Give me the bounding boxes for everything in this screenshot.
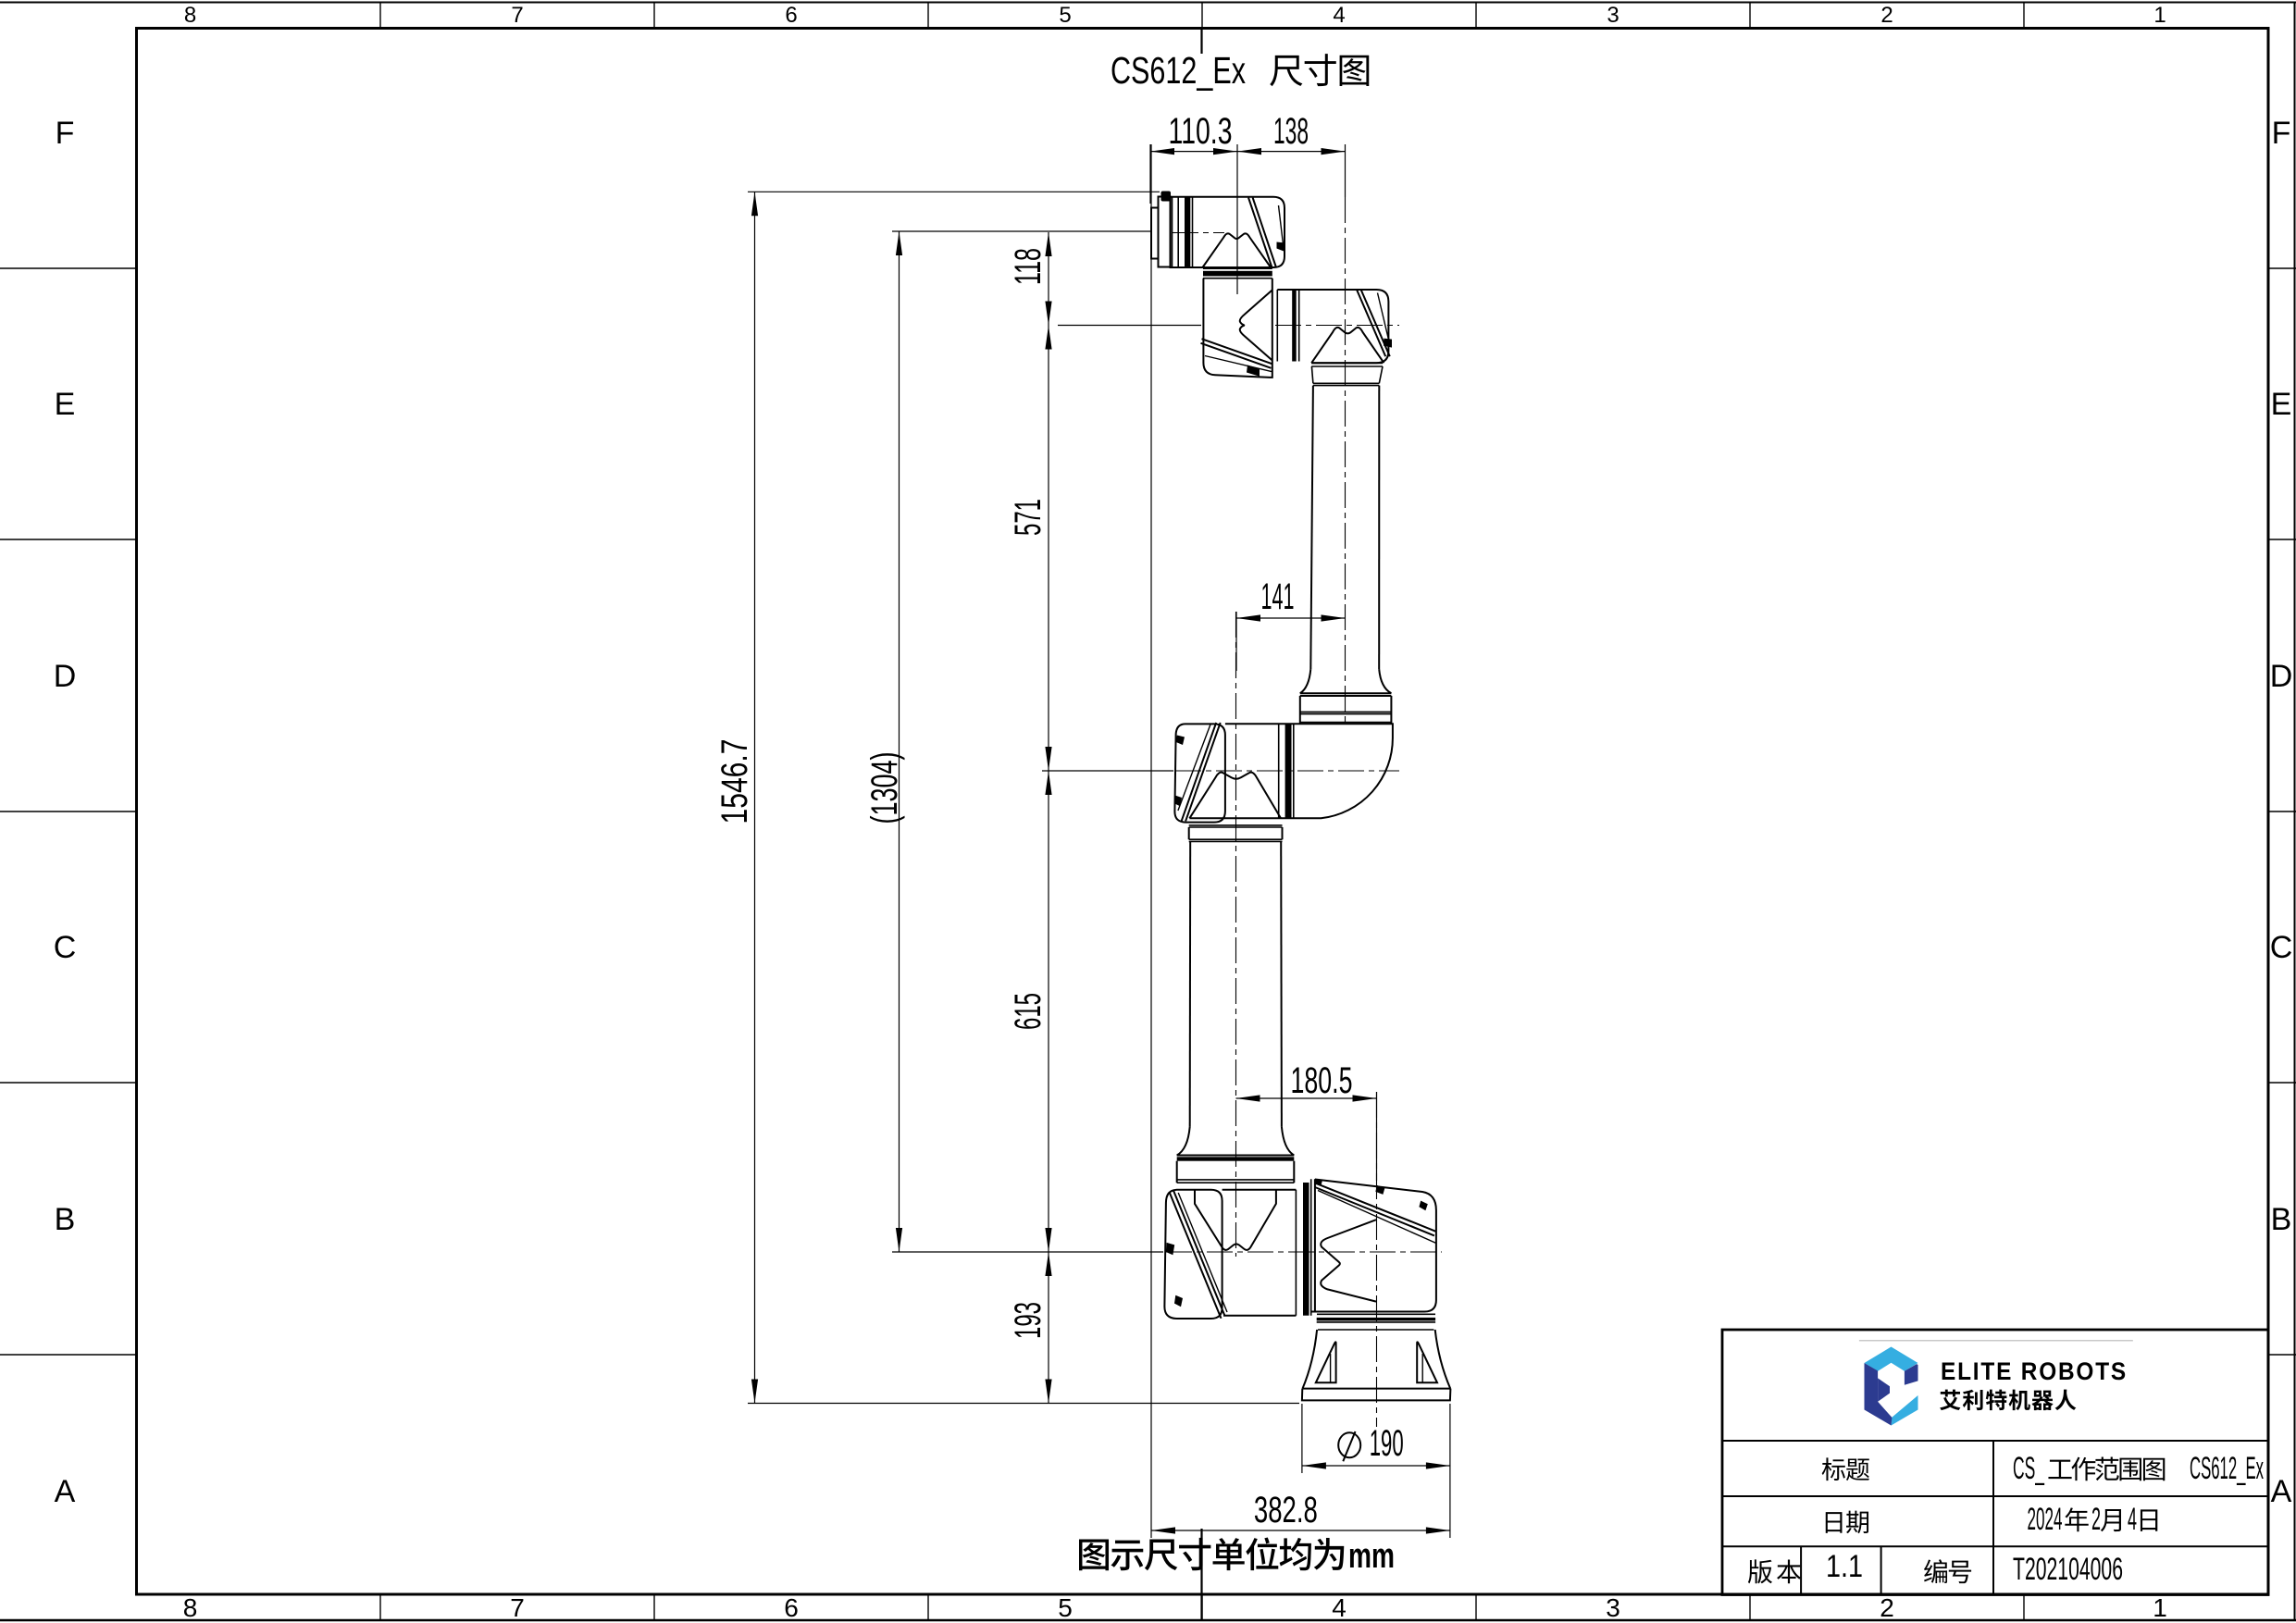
svg-text:6: 6 bbox=[785, 3, 797, 28]
svg-text:1: 1 bbox=[2153, 1593, 2167, 1622]
svg-text:E: E bbox=[55, 387, 76, 422]
svg-text:2: 2 bbox=[2091, 1502, 2101, 1537]
svg-text:A: A bbox=[55, 1474, 76, 1509]
svg-text:D: D bbox=[54, 659, 77, 694]
svg-text:180.5: 180.5 bbox=[1291, 1060, 1353, 1101]
svg-text:141: 141 bbox=[1261, 576, 1295, 617]
svg-text:T202104006: T202104006 bbox=[2013, 1552, 2123, 1587]
svg-text:193: 193 bbox=[1008, 1302, 1049, 1339]
svg-text:C: C bbox=[2270, 930, 2293, 965]
svg-text:1.1: 1.1 bbox=[1826, 1549, 1863, 1584]
svg-text:E: E bbox=[2271, 387, 2292, 422]
svg-text:8: 8 bbox=[184, 3, 196, 28]
svg-text:7: 7 bbox=[511, 3, 523, 28]
svg-text:A: A bbox=[2271, 1474, 2292, 1509]
svg-text:5: 5 bbox=[1058, 1593, 1073, 1622]
svg-text:110.3: 110.3 bbox=[1169, 111, 1233, 152]
svg-text:4: 4 bbox=[2128, 1502, 2137, 1537]
svg-text:B: B bbox=[2271, 1202, 2292, 1237]
svg-text:3: 3 bbox=[1606, 1593, 1620, 1622]
svg-text:(1304): (1304) bbox=[864, 752, 905, 824]
svg-text:B: B bbox=[55, 1202, 76, 1237]
svg-text:D: D bbox=[2270, 659, 2293, 694]
svg-text:3: 3 bbox=[1607, 3, 1619, 28]
svg-text:F: F bbox=[2272, 116, 2291, 151]
svg-text:ELITE ROBOTS: ELITE ROBOTS bbox=[1941, 1357, 2128, 1385]
svg-text:2024: 2024 bbox=[2028, 1502, 2063, 1537]
svg-text:190: 190 bbox=[1370, 1423, 1404, 1464]
svg-text:615: 615 bbox=[1008, 993, 1049, 1030]
svg-text:6: 6 bbox=[784, 1593, 799, 1622]
svg-text:CS612_Ex: CS612_Ex bbox=[1111, 49, 1246, 92]
svg-text:5: 5 bbox=[1059, 3, 1071, 28]
svg-text:F: F bbox=[56, 116, 75, 151]
svg-text:CS_: CS_ bbox=[2013, 1451, 2045, 1486]
svg-text:1546.7: 1546.7 bbox=[714, 739, 755, 824]
svg-text:mm: mm bbox=[1348, 1537, 1395, 1576]
svg-text:4: 4 bbox=[1332, 1593, 1347, 1622]
svg-text:138: 138 bbox=[1273, 111, 1309, 152]
svg-text:4: 4 bbox=[1333, 3, 1345, 28]
svg-text:2: 2 bbox=[1880, 3, 1893, 28]
svg-text:CS612_Ex: CS612_Ex bbox=[2190, 1451, 2264, 1486]
svg-text:571: 571 bbox=[1008, 499, 1049, 536]
svg-text:382.8: 382.8 bbox=[1254, 1490, 1318, 1530]
svg-text:7: 7 bbox=[510, 1593, 525, 1622]
svg-text:2: 2 bbox=[1880, 1593, 1894, 1622]
svg-text:C: C bbox=[54, 930, 77, 965]
svg-text:1: 1 bbox=[2153, 3, 2166, 28]
svg-text:8: 8 bbox=[183, 1593, 198, 1622]
svg-text:118: 118 bbox=[1008, 248, 1049, 285]
